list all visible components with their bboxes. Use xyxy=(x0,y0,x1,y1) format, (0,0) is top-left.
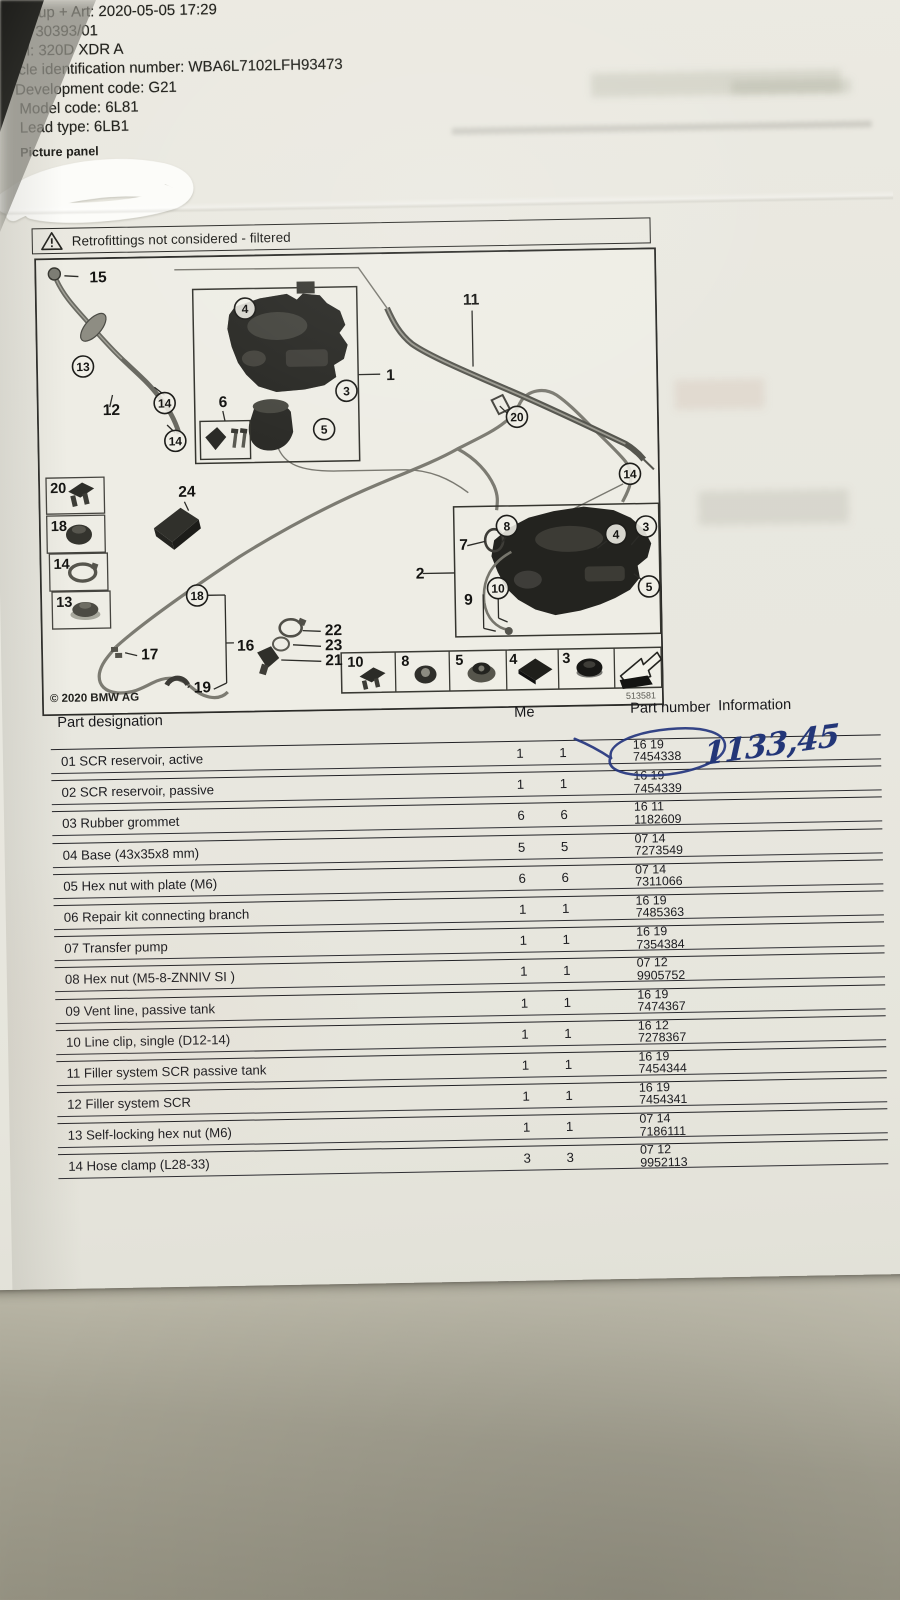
cell-designation: 09 Vent line, passive tank xyxy=(65,997,215,1023)
cell-designation: 04 Base (43x35x8 mm) xyxy=(62,841,199,866)
show-through-smudge xyxy=(452,120,872,134)
diagram-callout-label: 14 xyxy=(623,467,637,481)
cell-designation: 03 Rubber grommet xyxy=(62,810,180,835)
diagram-callout-label: 4 xyxy=(613,527,620,541)
diagram-callout-label: 10 xyxy=(347,655,363,671)
parts-table: 01 SCR reservoir, active1116 19745433802… xyxy=(51,734,889,1185)
diagram-callout-label: 9 xyxy=(464,592,473,609)
col-header-designation: Part designation xyxy=(57,713,163,731)
diagram-callout-label: 5 xyxy=(646,580,653,594)
cell-qty-1: 1 xyxy=(512,991,536,1014)
diagram-callout-label: 5 xyxy=(321,423,328,437)
document-page: oup + Art: 2020-05-05 17:29r: 30393/01el… xyxy=(0,0,900,1291)
vehicle-header-line: r: 30393/01 xyxy=(22,22,98,40)
col-header-part-number: Part number xyxy=(630,699,711,716)
cell-qty-1: 5 xyxy=(509,835,533,858)
cell-designation: 02 SCR reservoir, passive xyxy=(61,778,214,804)
show-through-smudge xyxy=(731,79,851,95)
cell-part-number: 07 147186111 xyxy=(639,1112,686,1138)
diagram-callout-label: 2 xyxy=(416,565,425,582)
cell-part-number: 16 197454339 xyxy=(633,769,682,795)
diagram-callout-label: 6 xyxy=(219,394,228,411)
diagram-callout-label: 14 xyxy=(53,557,69,573)
cell-part-number: 07 147311066 xyxy=(635,863,683,889)
vehicle-header-line: Model code: 6L81 xyxy=(19,98,139,117)
cell-designation: 10 Line clip, single (D12-14) xyxy=(66,1028,231,1054)
parts-diagram: 435131414201418810435 151211162416171922… xyxy=(34,247,664,716)
cell-designation: 06 Repair kit connecting branch xyxy=(64,903,250,929)
whiteout-scribble xyxy=(0,148,224,238)
warning-triangle-icon xyxy=(41,231,63,251)
cell-part-number: 16 127278367 xyxy=(638,1019,687,1045)
vehicle-header-line: el: 320D XDR A xyxy=(18,41,123,60)
diagram-border xyxy=(35,248,663,715)
cell-part-number: 16 197454344 xyxy=(638,1050,687,1076)
cell-designation: 11 Filler system SCR passive tank xyxy=(66,1058,266,1085)
cell-designation: 14 Hose clamp (L28-33) xyxy=(68,1153,210,1179)
cell-designation: 13 Self-locking hex nut (M6) xyxy=(67,1121,232,1147)
cell-designation: 08 Hex nut (M5-8-ZNNIV SI ) xyxy=(65,965,235,991)
diagram-callout-label: 20 xyxy=(510,410,524,424)
diagram-callout-label: 16 xyxy=(237,637,255,654)
diagram-callout-label: 20 xyxy=(50,481,66,497)
cell-qty-2: 1 xyxy=(557,1115,581,1138)
cell-qty-2: 6 xyxy=(552,803,576,826)
cell-qty-1: 1 xyxy=(512,960,536,983)
diagram-callout-label: 14 xyxy=(169,434,183,448)
cell-qty-1: 1 xyxy=(513,1022,537,1045)
diagram-callout-label: 18 xyxy=(51,519,67,535)
show-through-smudge xyxy=(591,69,841,97)
diagram-callout-label: 13 xyxy=(56,595,72,611)
cell-qty-2: 1 xyxy=(557,1084,581,1107)
show-through-smudge xyxy=(698,489,849,526)
cell-qty-2: 1 xyxy=(554,897,578,920)
diagram-callout-label: 21 xyxy=(325,652,343,669)
cell-part-number: 16 111182609 xyxy=(634,800,682,826)
vehicle-header-line: Lead type: 6LB1 xyxy=(20,118,130,137)
diagram-callout-label: 5 xyxy=(455,653,463,669)
cell-qty-1: 1 xyxy=(514,1116,538,1139)
diagram-callout-label: 8 xyxy=(503,519,510,533)
cell-qty-2: 1 xyxy=(555,990,579,1013)
bmw-copyright: © 2020 BMW AG xyxy=(50,692,139,706)
cell-part-number: 07 129905752 xyxy=(637,956,686,982)
vehicle-header-line: Development code: G21 xyxy=(15,79,177,99)
cell-qty-1: 1 xyxy=(514,1085,538,1108)
diagram-callout-label: 19 xyxy=(194,679,212,696)
diagram-callout-label: 15 xyxy=(89,269,107,286)
diagram-callout-label: 24 xyxy=(178,484,196,501)
cell-part-number: 16 197354384 xyxy=(636,925,685,951)
cell-qty-2: 1 xyxy=(555,959,579,982)
cap-15 xyxy=(48,268,60,280)
diagram-callout-label: 4 xyxy=(242,302,249,316)
diagram-callout-label: 7 xyxy=(459,537,468,554)
cell-qty-2: 5 xyxy=(552,834,576,857)
show-through-smudge xyxy=(674,378,765,410)
cell-part-number: 16 197485363 xyxy=(635,894,684,920)
cell-qty-1: 6 xyxy=(510,866,534,889)
vehicle-header-line: oup + Art: 2020-05-05 17:29 xyxy=(30,1,218,21)
cell-qty-1: 1 xyxy=(508,773,532,796)
cell-qty-2: 1 xyxy=(556,1021,580,1044)
cell-qty-2: 6 xyxy=(553,866,577,889)
cell-qty-1: 1 xyxy=(511,929,535,952)
cell-part-number: 16 197474367 xyxy=(637,987,686,1013)
cell-part-number: 07 147273549 xyxy=(634,831,683,857)
warning-text: Retrofittings not considered - filtered xyxy=(72,229,291,248)
diagram-callout-label: 14 xyxy=(158,396,172,410)
cell-part-number: 16 197454338 xyxy=(633,738,682,764)
cell-qty-2: 3 xyxy=(558,1146,582,1169)
cell-part-number: 07 129952113 xyxy=(640,1143,688,1169)
diagram-callout-label: 10 xyxy=(491,582,505,596)
cell-designation: 07 Transfer pump xyxy=(64,935,168,960)
cell-qty-1: 3 xyxy=(515,1147,539,1170)
diagram-callout-label: 4 xyxy=(509,652,517,668)
cell-qty-2: 1 xyxy=(554,928,578,951)
figure-number: 513581 xyxy=(626,690,656,701)
col-header-quantity: Me xyxy=(514,705,535,721)
cell-part-number: 16 197454341 xyxy=(639,1081,688,1107)
col-header-information: Information xyxy=(718,697,791,714)
diagram-callout-label: 3 xyxy=(343,384,350,398)
diagram-callout-label: 13 xyxy=(76,360,90,374)
cell-qty-2: 1 xyxy=(556,1053,580,1076)
cell-qty-2: 1 xyxy=(551,741,575,764)
diagram-callout-label: 18 xyxy=(190,589,204,603)
cell-qty-2: 1 xyxy=(551,772,575,795)
diagram-callout-label: 11 xyxy=(463,291,480,308)
diagram-callout-label: 3 xyxy=(642,520,649,534)
diagram-callout-label: 17 xyxy=(141,646,159,663)
diagram-callout-label: 8 xyxy=(401,654,409,670)
cell-qty-1: 6 xyxy=(509,804,533,827)
diagram-callout-label: 3 xyxy=(562,651,570,667)
vehicle-header-line: hicle identification number: WBA6L7102LF… xyxy=(7,56,343,79)
cell-qty-1: 1 xyxy=(513,1053,537,1076)
vehicle-header: oup + Art: 2020-05-05 17:29r: 30393/01el… xyxy=(0,0,889,8)
legend-strip xyxy=(341,647,662,694)
cell-designation: 01 SCR reservoir, active xyxy=(61,747,204,773)
diagram-callout-label: 12 xyxy=(103,402,121,419)
diagram-callout-label: 1 xyxy=(386,367,395,384)
cell-qty-1: 1 xyxy=(511,897,535,920)
cell-qty-1: 1 xyxy=(508,742,532,765)
cell-designation: 12 Filler system SCR xyxy=(67,1091,191,1116)
cell-designation: 05 Hex nut with plate (M6) xyxy=(63,872,217,898)
